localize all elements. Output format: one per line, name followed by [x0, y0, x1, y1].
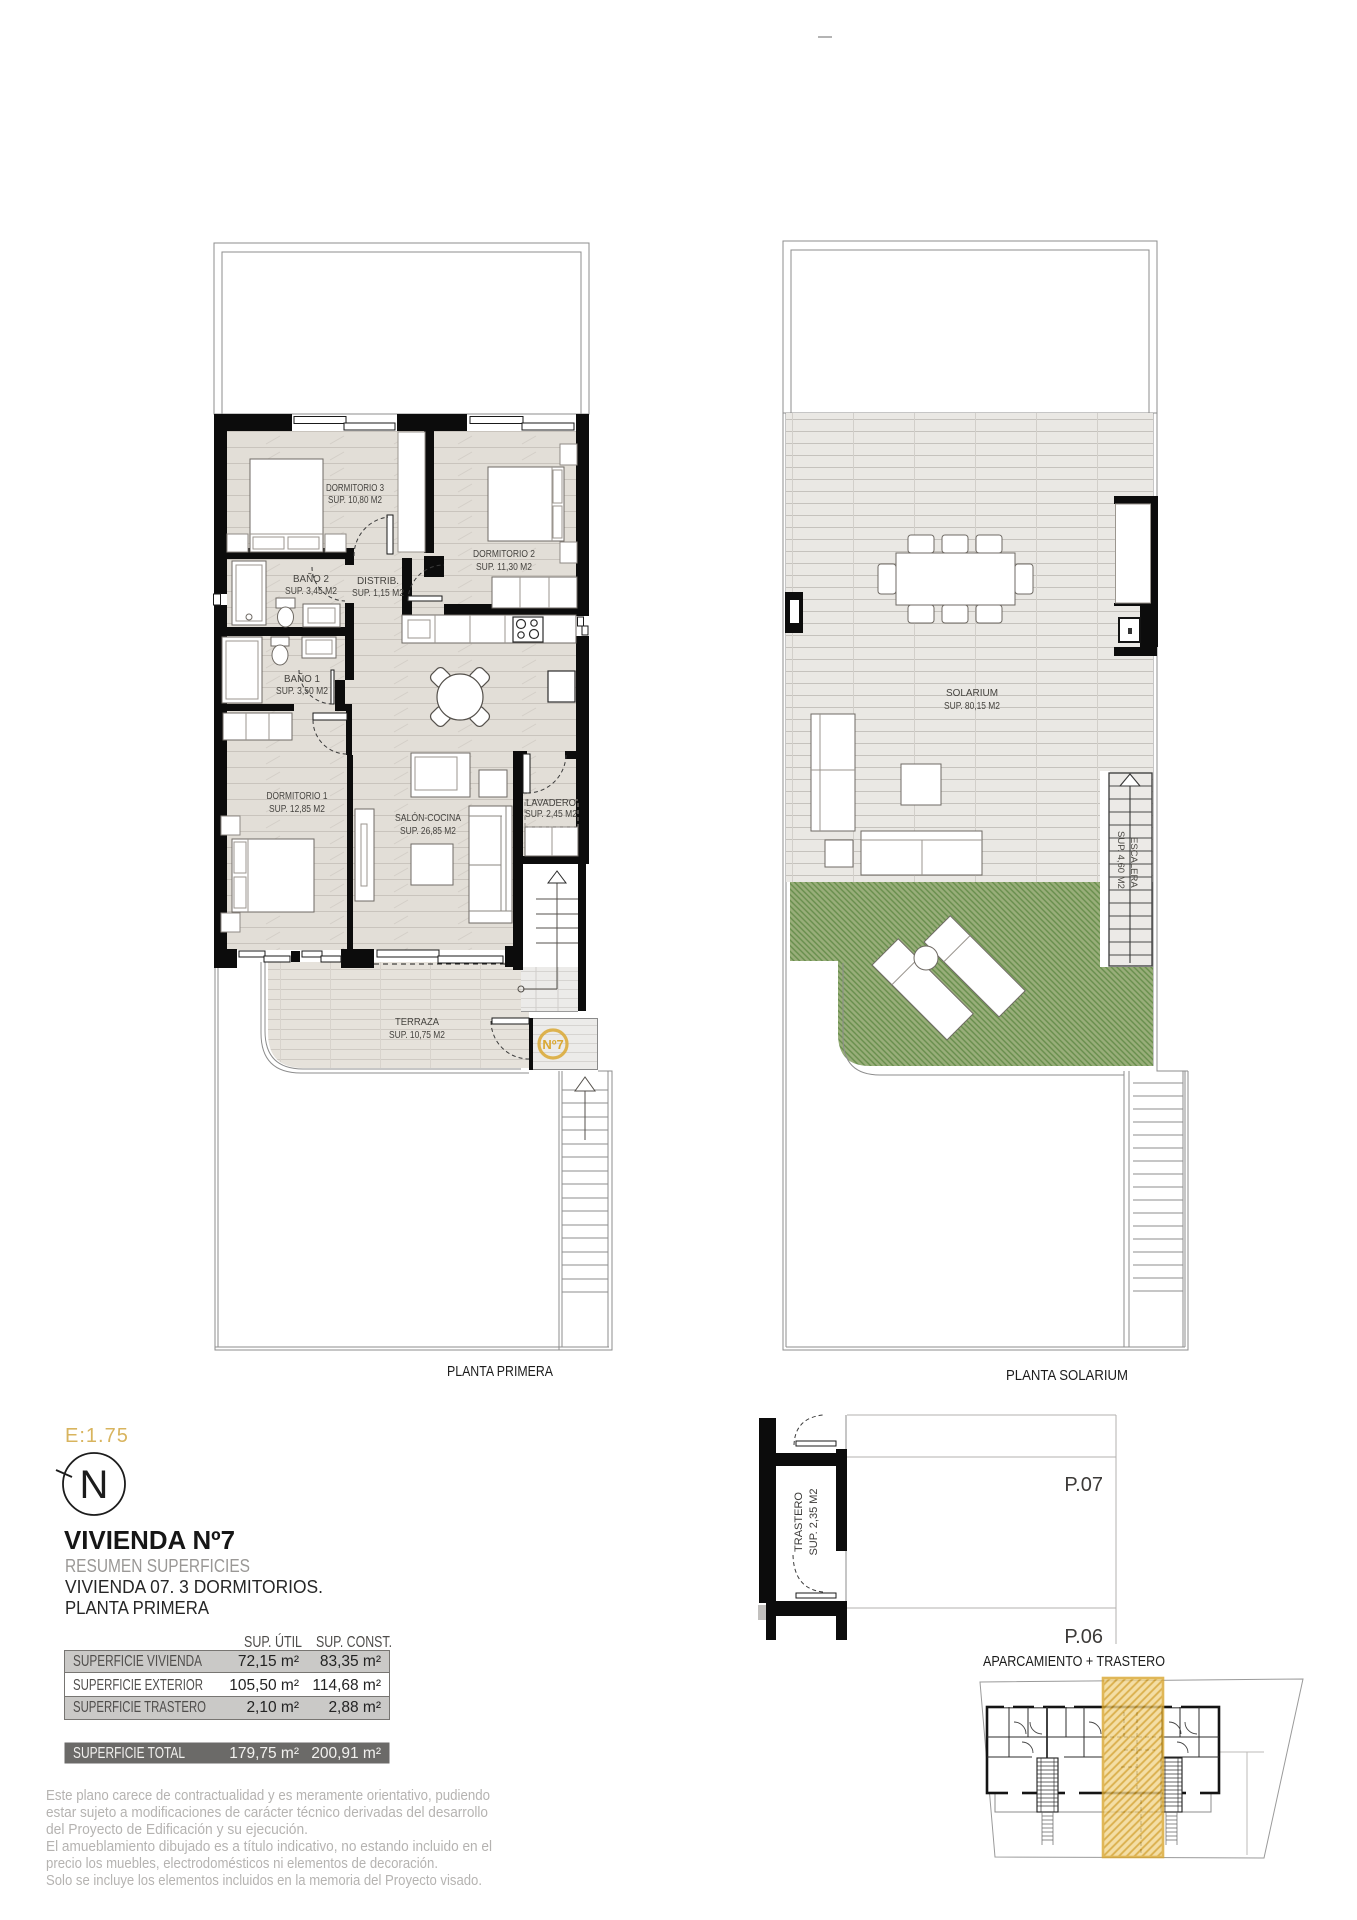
svg-text:Solo se incluye los elementos: Solo se incluye los elementos incluidos … [46, 1872, 482, 1889]
svg-text:ESCALERA: ESCALERA [1128, 837, 1139, 888]
svg-text:SUP. 4,60 M2: SUP. 4,60 M2 [1115, 831, 1126, 889]
svg-text:SUP. 10,80 M2: SUP. 10,80 M2 [328, 495, 382, 506]
svg-text:2,10 m²: 2,10 m² [246, 1699, 299, 1716]
svg-text:precio los muebles, electrodom: precio los muebles, electrodomésticos ni… [46, 1855, 438, 1872]
svg-text:SOLARIUM: SOLARIUM [946, 688, 998, 699]
svg-text:Nº7: Nº7 [542, 1037, 563, 1052]
svg-text:PLANTA SOLARIUM: PLANTA SOLARIUM [1006, 1367, 1128, 1384]
svg-text:del Proyecto de Edificación y: del Proyecto de Edificación y su ejecuci… [46, 1821, 308, 1838]
svg-text:SUP. 3,45 M2: SUP. 3,45 M2 [285, 586, 337, 597]
svg-text:SUPERFICIE EXTERIOR: SUPERFICIE EXTERIOR [73, 1677, 203, 1694]
svg-text:SUP. 1,15 M2: SUP. 1,15 M2 [352, 588, 404, 599]
svg-text:El amueblamiento dibujado es a: El amueblamiento dibujado es a título in… [46, 1838, 492, 1855]
svg-text:105,50 m²: 105,50 m² [229, 1677, 299, 1694]
svg-text:2,88 m²: 2,88 m² [328, 1699, 381, 1716]
svg-text:BAÑO 1: BAÑO 1 [284, 672, 320, 685]
svg-text:SUP. 3,50 M2: SUP. 3,50 M2 [276, 686, 328, 697]
svg-text:APARCAMIENTO + TRASTERO: APARCAMIENTO + TRASTERO [983, 1653, 1165, 1670]
svg-text:DORMITORIO 1: DORMITORIO 1 [267, 791, 328, 802]
svg-text:N: N [80, 1463, 109, 1507]
svg-text:SUP. 11,30 M2: SUP. 11,30 M2 [476, 562, 532, 573]
svg-text:P.07: P.07 [1064, 1474, 1103, 1496]
svg-text:VIVIENDA Nº7: VIVIENDA Nº7 [64, 1525, 235, 1555]
svg-text:SUPERFICIE TOTAL: SUPERFICIE TOTAL [73, 1745, 185, 1762]
svg-text:PLANTA PRIMERA: PLANTA PRIMERA [447, 1363, 553, 1380]
svg-text:72,15 m²: 72,15 m² [238, 1653, 299, 1670]
svg-text:BAÑO 2: BAÑO 2 [293, 572, 329, 585]
svg-text:200,91 m²: 200,91 m² [311, 1745, 381, 1762]
svg-text:SALÓN-COCINA: SALÓN-COCINA [395, 811, 461, 824]
svg-text:DORMITORIO 3: DORMITORIO 3 [326, 483, 384, 494]
svg-text:SUP. 10,75 M2: SUP. 10,75 M2 [389, 1030, 445, 1041]
svg-text:SUPERFICIE VIVIENDA: SUPERFICIE VIVIENDA [73, 1653, 202, 1670]
svg-text:DISTRIB.: DISTRIB. [357, 576, 399, 587]
svg-text:SUP. ÚTIL: SUP. ÚTIL [244, 1634, 302, 1651]
svg-text:VIVIENDA 07. 3 DORMITORIOS.: VIVIENDA 07. 3 DORMITORIOS. [65, 1577, 323, 1597]
svg-text:E:1.75: E:1.75 [65, 1425, 129, 1447]
svg-text:TRASTERO: TRASTERO [793, 1492, 805, 1552]
svg-text:SUP. 12,85 M2: SUP. 12,85 M2 [269, 804, 325, 815]
svg-text:P.06: P.06 [1064, 1626, 1103, 1648]
svg-text:SUP. 2,35 M2: SUP. 2,35 M2 [808, 1488, 820, 1555]
svg-text:RESUMEN SUPERFICIES: RESUMEN SUPERFICIES [65, 1556, 250, 1576]
svg-text:SUP. 80,15 M2: SUP. 80,15 M2 [944, 701, 1000, 712]
svg-text:TERRAZA: TERRAZA [395, 1017, 439, 1028]
svg-text:179,75 m²: 179,75 m² [229, 1745, 299, 1762]
svg-text:estar sujeto a modificaciones: estar sujeto a modificaciones de carácte… [46, 1804, 488, 1821]
svg-text:SUP. CONST.: SUP. CONST. [316, 1634, 392, 1651]
svg-text:SUP. 26,85 M2: SUP. 26,85 M2 [400, 826, 456, 837]
svg-text:Este plano carece de contractu: Este plano carece de contractualidad y e… [46, 1787, 490, 1804]
svg-text:LAVADERO: LAVADERO [526, 798, 576, 809]
svg-text:SUPERFICIE TRASTERO: SUPERFICIE TRASTERO [73, 1699, 206, 1716]
svg-text:SUP. 2,45 M2: SUP. 2,45 M2 [525, 809, 577, 820]
svg-text:DORMITORIO 2: DORMITORIO 2 [473, 549, 535, 560]
svg-text:PLANTA PRIMERA: PLANTA PRIMERA [65, 1598, 209, 1618]
svg-text:83,35 m²: 83,35 m² [320, 1653, 381, 1670]
svg-text:114,68 m²: 114,68 m² [312, 1677, 381, 1694]
